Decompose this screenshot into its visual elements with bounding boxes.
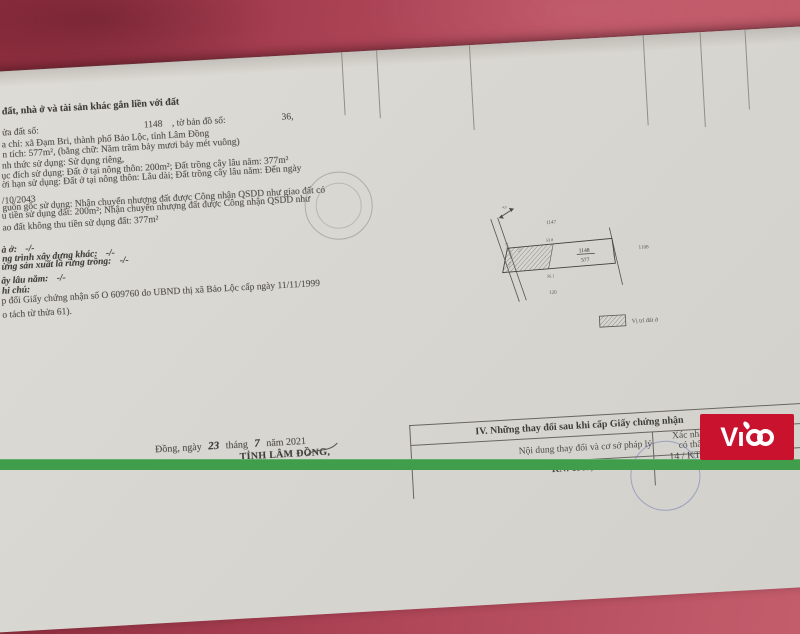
photo-of-land-certificate: { "colors":{"background":"#aa4254","pape… [0, 0, 800, 470]
neighbor-top-label: 1147 [546, 219, 557, 226]
fold-line-3 [469, 45, 475, 130]
date-thang: tháng [225, 439, 248, 451]
note-line-2: o tách từ thửa 61). [2, 307, 72, 322]
fold-line-5 [700, 32, 706, 127]
legend-label: Vị trí đất ở [631, 316, 659, 325]
vico-watermark-logo: Vı [700, 414, 794, 460]
certificate-paper: đất, nhà ở và tài sản khác gắn liền với … [0, 23, 800, 634]
north-arrow-label: 4,0 [502, 205, 507, 210]
parcel-number-label: 1148 [578, 248, 590, 255]
section-header: đất, nhà ở và tài sản khác gắn liền với … [2, 96, 180, 117]
plot-diagram: 4,0 ĐƯỜNG 1147 53.8 1148 577 56.1 120 11… [489, 191, 727, 344]
dim-bottom-label: 56.1 [547, 273, 555, 278]
vico-logo-letters: Vı [720, 424, 744, 451]
date-month-handwritten: 7 [254, 438, 260, 450]
parcel-number-label: ửa đất số: [2, 126, 39, 139]
dim-top-label: 53.8 [546, 237, 554, 242]
forest-value: -/- [119, 256, 129, 266]
date-prefix: Đồng, ngày [155, 442, 202, 456]
fold-line-2 [376, 50, 381, 118]
fold-line-4 [643, 35, 649, 125]
fold-line-1 [341, 52, 346, 115]
legend-hatch-box [599, 315, 626, 327]
map-sheet-value: 36, [281, 112, 293, 124]
neighbor-bottom-label: 120 [549, 290, 558, 296]
vico-ring-o-icon [757, 429, 774, 446]
table-col-left-header: Nội dung thay đổi và cơ sở pháp lý [519, 439, 653, 456]
fold-line-6 [744, 30, 749, 110]
perennial-value: -/- [56, 273, 66, 283]
date-day-handwritten: 23 [208, 440, 220, 453]
neighbor-right-label: 1108 [638, 244, 649, 251]
round-stamp [303, 170, 375, 242]
north-arrow [499, 208, 513, 218]
parcel-area-label: 577 [581, 257, 590, 263]
parcel-number-value: 1148 [144, 119, 163, 131]
map-sheet-label: , tờ bản đồ số: [172, 116, 226, 130]
green-bottom-bar [0, 459, 800, 470]
date-year: năm 2021 [266, 436, 306, 449]
